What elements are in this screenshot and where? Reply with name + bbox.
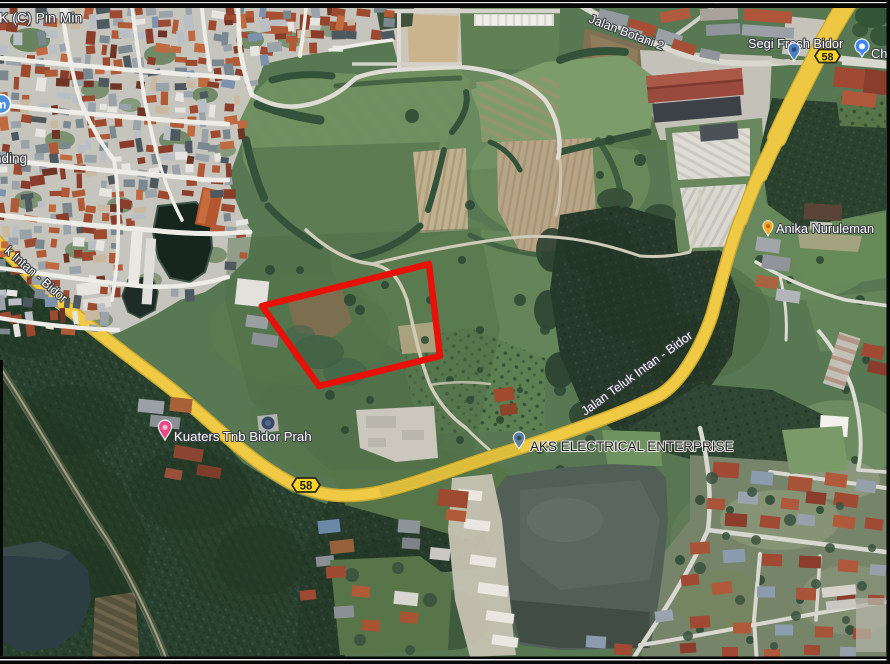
svg-text:AKS ELECTRICAL ENTERPRISE: AKS ELECTRICAL ENTERPRISE — [530, 439, 734, 454]
svg-text:m: m — [0, 98, 6, 112]
svg-text:58: 58 — [300, 480, 313, 492]
svg-text:Kuaters Tnb Bidor Prah: Kuaters Tnb Bidor Prah — [174, 429, 312, 444]
svg-text:nding: nding — [0, 151, 27, 166]
svg-text:58: 58 — [821, 51, 833, 63]
svg-text:Anika Nuruleman: Anika Nuruleman — [776, 221, 874, 236]
svg-text:K (C) Pin Min: K (C) Pin Min — [0, 10, 82, 26]
